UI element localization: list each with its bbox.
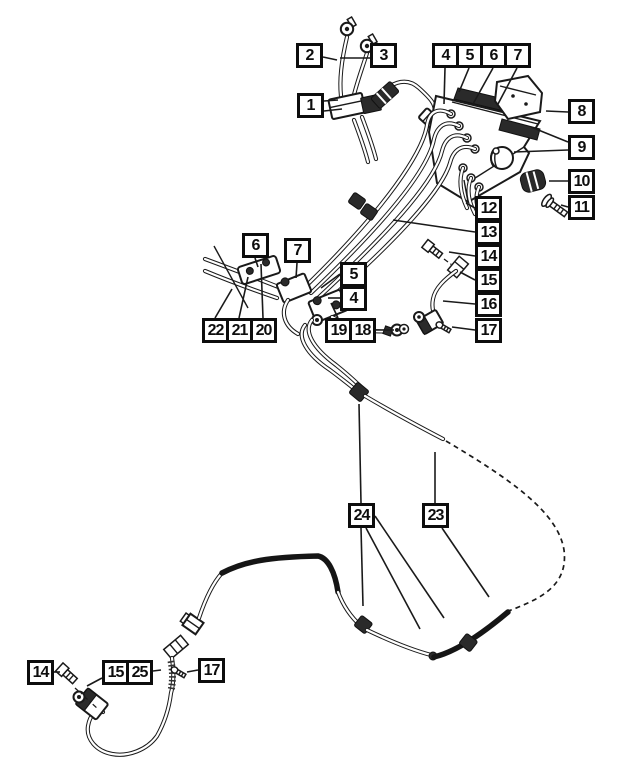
callout-18[interactable]: 18 [349, 318, 376, 343]
callout-6[interactable]: 6 [480, 43, 507, 68]
callout-6[interactable]: 6 [242, 233, 269, 258]
callout-17[interactable]: 17 [198, 658, 225, 683]
callout-9[interactable]: 9 [568, 135, 595, 160]
callout-22[interactable]: 22 [202, 318, 229, 343]
callout-15[interactable]: 15 [475, 268, 502, 293]
callout-23[interactable]: 23 [422, 503, 449, 528]
callout-21[interactable]: 21 [226, 318, 253, 343]
callout-16[interactable]: 16 [475, 292, 502, 317]
callout-20[interactable]: 20 [250, 318, 277, 343]
callout-24[interactable]: 24 [348, 503, 375, 528]
callout-25[interactable]: 25 [126, 660, 153, 685]
callout-5[interactable]: 5 [340, 262, 367, 287]
callout-1[interactable]: 1 [297, 93, 324, 118]
callout-5[interactable]: 5 [456, 43, 483, 68]
callout-15[interactable]: 15 [102, 660, 129, 685]
callout-7[interactable]: 7 [504, 43, 531, 68]
callout-17[interactable]: 17 [475, 318, 502, 343]
callout-13[interactable]: 13 [475, 220, 502, 245]
callout-10[interactable]: 10 [568, 169, 595, 194]
callout-7[interactable]: 7 [284, 238, 311, 263]
callout-layer: 1234567891011121314151617675422212019182… [0, 0, 640, 777]
callout-14[interactable]: 14 [27, 660, 54, 685]
callout-2[interactable]: 2 [296, 43, 323, 68]
callout-8[interactable]: 8 [568, 99, 595, 124]
callout-19[interactable]: 19 [325, 318, 352, 343]
callout-14[interactable]: 14 [475, 244, 502, 269]
callout-11[interactable]: 11 [568, 195, 595, 220]
callout-4[interactable]: 4 [432, 43, 459, 68]
callout-4[interactable]: 4 [340, 286, 367, 311]
callout-3[interactable]: 3 [370, 43, 397, 68]
diagram-canvas: 1234567891011121314151617675422212019182… [0, 0, 640, 777]
callout-12[interactable]: 12 [475, 196, 502, 221]
